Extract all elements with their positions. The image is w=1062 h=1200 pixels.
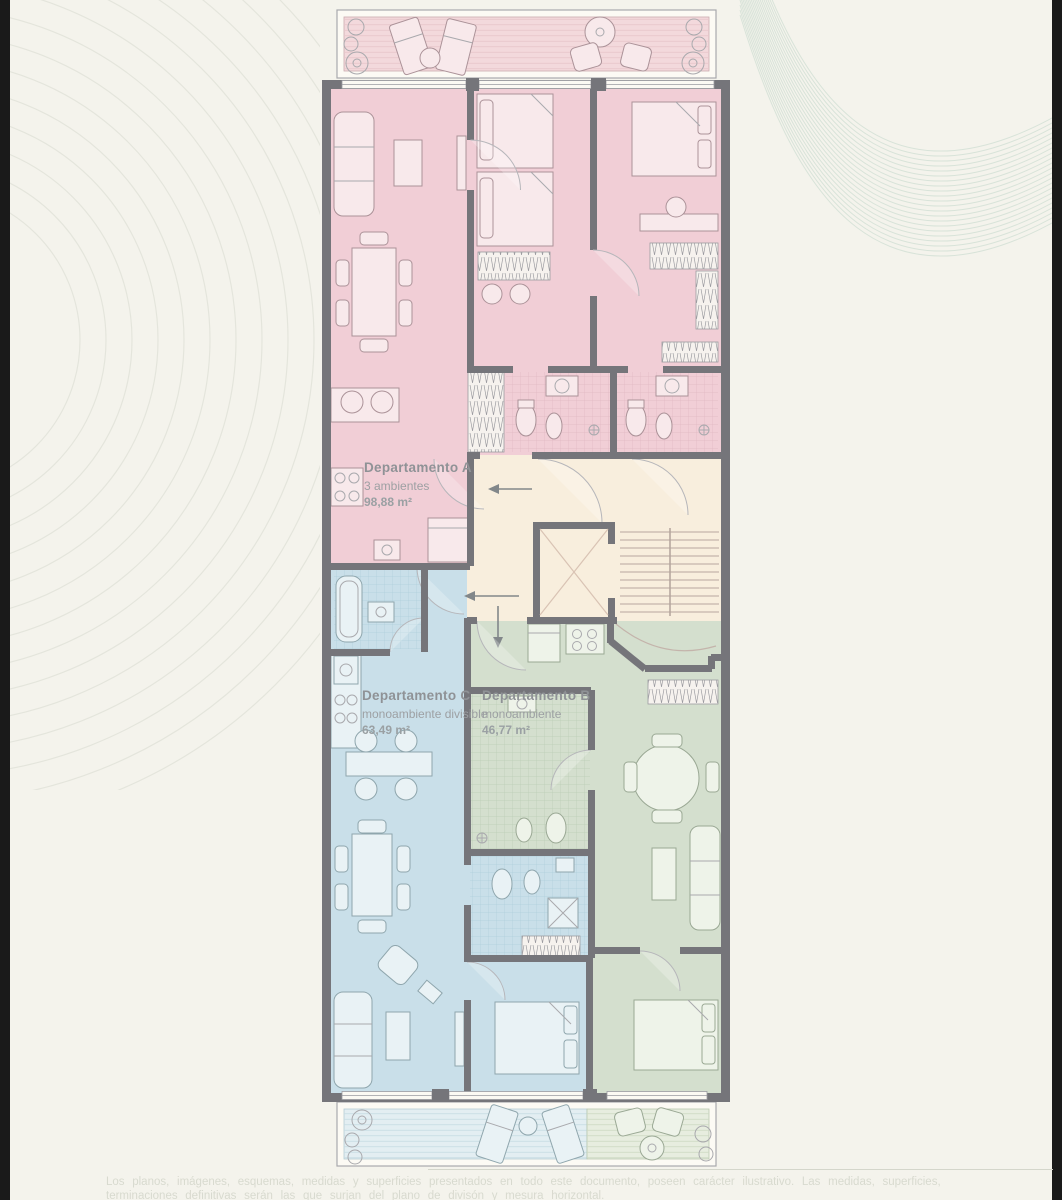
sofa-icon [334, 992, 372, 1088]
apartment-a-label: Departamento A 3 ambientes 98,88 m² [364, 460, 472, 510]
left-edge-bar [0, 0, 10, 1200]
fridge-icon [428, 518, 468, 562]
apartment-b-label: Departamento B monoambiente 46,77 m² [482, 688, 590, 738]
tv-icon [455, 1012, 464, 1066]
floor-plan-page: Departamento A 3 ambientes 98,88 m² Depa… [0, 0, 1062, 1200]
wardrobe-icon [662, 342, 718, 362]
coffee-table-icon [394, 140, 422, 186]
disclaimer: Los planos, imágenes, esquemas, medidas … [106, 1176, 1054, 1200]
stove-icon [566, 624, 604, 654]
balcony-top [337, 10, 716, 78]
fridge-icon [528, 624, 560, 662]
apartment-c-label: Departamento C monoambiente divisible 63… [362, 688, 487, 738]
apartment-b-area: 46,77 m² [482, 724, 590, 738]
wardrobe-icon [650, 243, 718, 269]
apartment-a-area: 98,88 m² [364, 496, 472, 510]
footer-divider [428, 1169, 1053, 1170]
stove-icon [331, 468, 363, 506]
apartment-a-name: Departamento A [364, 460, 472, 476]
coffee-table-icon [386, 1012, 410, 1060]
wardrobe-icon [696, 271, 718, 329]
wardrobe-icon [478, 252, 550, 280]
sink-unit-icon [374, 540, 400, 560]
coffee-table-icon [652, 848, 676, 900]
floor-plan-drawing [0, 0, 1062, 1200]
wardrobe-icon [648, 680, 718, 704]
sofa-icon [690, 826, 720, 930]
tv-icon [457, 136, 466, 190]
closet-icon [468, 372, 504, 452]
double-bed-icon [495, 1002, 579, 1074]
sink-icon [368, 602, 394, 622]
kitchen-counter-icon [331, 388, 399, 422]
stool-icon [482, 284, 502, 304]
sofa-icon [334, 112, 374, 216]
balcony-bottom [337, 1102, 716, 1166]
stool-icon [510, 284, 530, 304]
kitchen-counter-icon [331, 652, 361, 748]
wardrobe-icon [522, 936, 580, 956]
apartment-c-name: Departamento C [362, 688, 487, 704]
disclaimer-line-1: Los planos, imágenes, esquemas, medidas … [106, 1176, 1054, 1190]
apartment-b-type: monoambiente [482, 708, 590, 722]
apartment-b-name: Departamento B [482, 688, 590, 704]
right-edge-bar [1052, 0, 1062, 1200]
double-bed-icon [632, 102, 716, 176]
disclaimer-line-2: terminaciones definitivas serán las que … [106, 1190, 1054, 1200]
apartment-c-area: 63,49 m² [362, 724, 487, 738]
double-bed-icon [634, 1000, 718, 1070]
apartment-a-type: 3 ambientes [364, 480, 472, 494]
apartment-c-type: monoambiente divisible [362, 708, 487, 722]
bathtub-icon [336, 576, 362, 642]
